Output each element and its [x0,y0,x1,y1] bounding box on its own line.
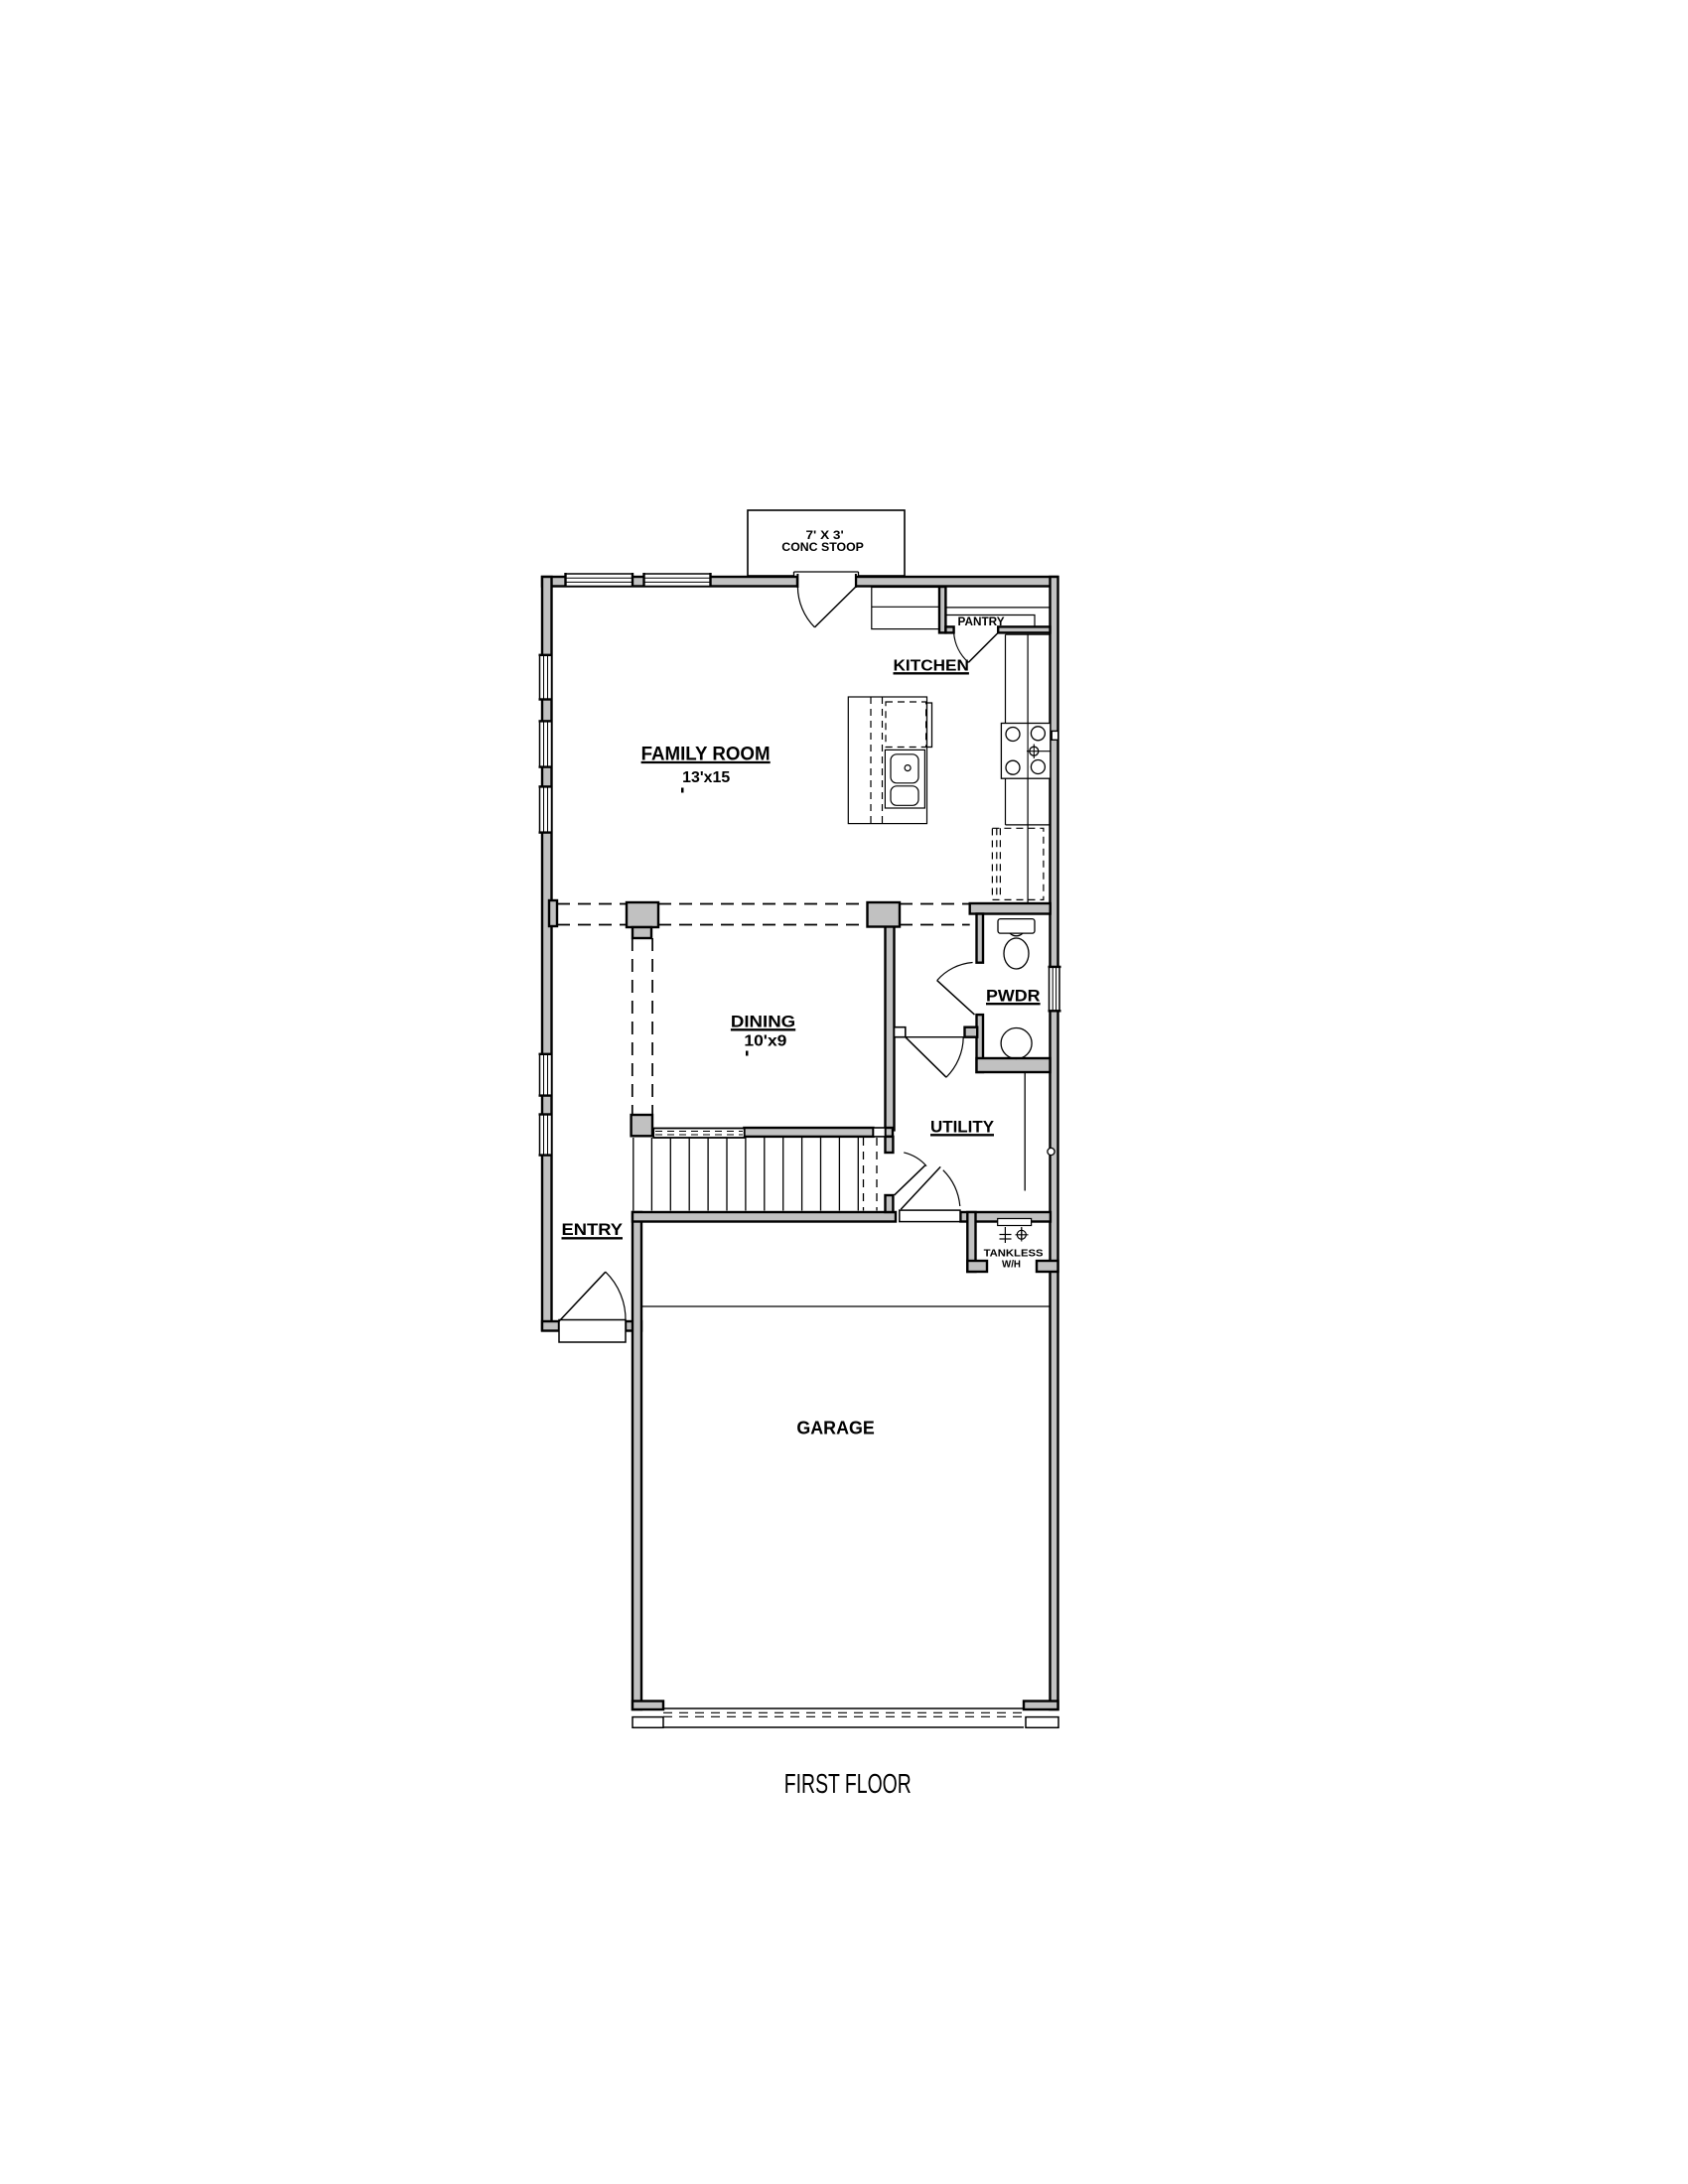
svg-text:13'x15: 13'x15 [682,769,730,786]
svg-text:ENTRY: ENTRY [562,1221,624,1239]
svg-text:PWDR: PWDR [986,987,1041,1006]
svg-text:GARAGE: GARAGE [796,1418,874,1438]
svg-text:UTILITY: UTILITY [930,1119,994,1137]
svg-text:FIRST FLOOR: FIRST FLOOR [784,1768,912,1799]
svg-text:DINING: DINING [731,1014,795,1031]
svg-text:CONC STOOP: CONC STOOP [781,542,864,554]
svg-text:KITCHEN: KITCHEN [894,658,969,675]
svg-text:7' X 3': 7' X 3' [806,530,845,542]
svg-text:10'x9: 10'x9 [744,1033,786,1050]
svg-text:PANTRY: PANTRY [958,616,1005,628]
svg-text:W/H: W/H [1002,1258,1021,1270]
